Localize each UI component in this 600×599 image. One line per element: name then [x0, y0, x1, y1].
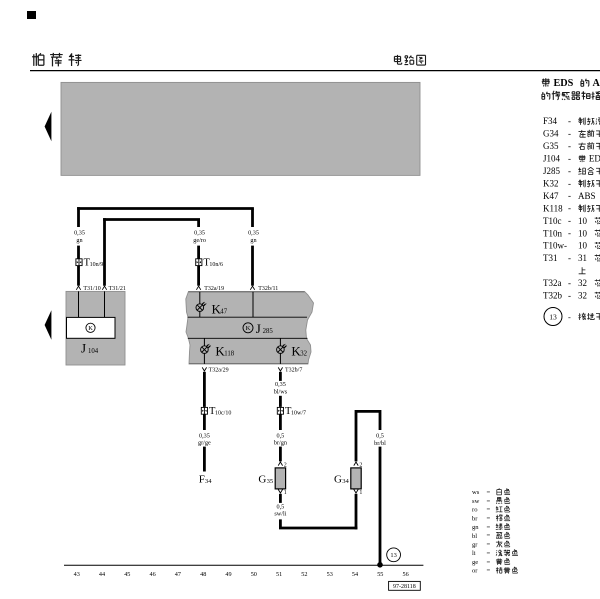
svg-text:bl/ws: bl/ws	[274, 388, 288, 395]
svg-text:T10w-: T10w-	[543, 241, 567, 251]
svg-text:=: =	[487, 498, 491, 505]
svg-text:0,35: 0,35	[74, 230, 85, 237]
svg-text:G34: G34	[543, 129, 559, 139]
svg-text:32: 32	[578, 278, 587, 288]
svg-text:sw/li: sw/li	[274, 511, 286, 518]
svg-text:35: 35	[267, 478, 274, 485]
svg-text:43: 43	[74, 571, 80, 578]
svg-text:10n/9: 10n/9	[90, 262, 104, 268]
svg-text:=: =	[487, 515, 491, 522]
svg-text:T10c: T10c	[543, 216, 562, 226]
svg-text:EDS: EDS	[554, 78, 574, 89]
svg-text:K: K	[246, 325, 251, 332]
svg-text:ge: ge	[472, 559, 478, 566]
svg-text:ro: ro	[472, 507, 478, 514]
svg-text:-: -	[568, 178, 571, 188]
svg-text:-: -	[568, 153, 571, 163]
svg-text:13: 13	[390, 552, 396, 559]
svg-text:285: 285	[263, 328, 274, 335]
svg-text:br/gn: br/gn	[274, 440, 287, 447]
svg-text:gn: gn	[250, 237, 256, 244]
svg-text:34: 34	[205, 478, 212, 485]
svg-text:-: -	[568, 191, 571, 201]
svg-text:=: =	[487, 507, 491, 514]
svg-text:gr: gr	[472, 542, 478, 549]
svg-text:44: 44	[99, 571, 105, 578]
svg-text:47: 47	[175, 571, 181, 578]
svg-text:T31: T31	[543, 253, 558, 263]
svg-text:J285: J285	[543, 166, 561, 176]
svg-text:10: 10	[578, 216, 588, 226]
svg-text:T10n: T10n	[543, 228, 562, 238]
svg-text:gn: gn	[76, 237, 82, 244]
svg-text:ED: ED	[587, 154, 600, 164]
svg-text:ABS: ABS	[578, 191, 596, 201]
svg-text:=: =	[487, 568, 491, 575]
svg-text:T32a/29: T32a/29	[209, 368, 229, 374]
svg-text:sw: sw	[472, 498, 480, 505]
svg-text:=: =	[487, 489, 491, 496]
svg-text:10: 10	[578, 241, 588, 251]
svg-text:50: 50	[251, 571, 257, 578]
svg-text:G35: G35	[543, 141, 559, 151]
svg-text:32: 32	[300, 351, 307, 358]
svg-text:J: J	[256, 321, 261, 336]
svg-text:1: 1	[359, 490, 362, 496]
svg-text:51: 51	[276, 571, 282, 578]
svg-text:bl: bl	[472, 533, 477, 540]
svg-text:T32b/7: T32b/7	[285, 368, 302, 374]
svg-text:10: 10	[578, 228, 588, 238]
svg-text:gn: gn	[472, 524, 479, 531]
svg-text:54: 54	[352, 571, 358, 578]
svg-text:10n/6: 10n/6	[209, 262, 223, 268]
svg-text:K32: K32	[543, 178, 559, 188]
svg-text:0,35: 0,35	[199, 433, 210, 440]
svg-text:or: or	[472, 568, 478, 575]
svg-text:10w/7: 10w/7	[291, 410, 306, 416]
svg-text:-: -	[568, 203, 571, 213]
svg-text:gr/ge: gr/ge	[198, 440, 211, 447]
svg-text:K: K	[88, 325, 93, 332]
svg-text:=: =	[487, 550, 491, 557]
svg-text:-: -	[568, 166, 571, 176]
svg-text:31: 31	[578, 253, 587, 263]
svg-text:0,35: 0,35	[248, 230, 259, 237]
svg-text:53: 53	[327, 571, 333, 578]
svg-text:K118: K118	[543, 203, 563, 213]
svg-text:F34: F34	[543, 116, 558, 126]
svg-text:55: 55	[377, 571, 383, 578]
svg-text:K47: K47	[543, 191, 559, 201]
svg-text:ge/ro: ge/ro	[193, 237, 206, 244]
svg-text:T32a: T32a	[543, 278, 562, 288]
svg-text:T32b: T32b	[543, 291, 562, 301]
svg-text:li: li	[472, 550, 476, 557]
svg-text:104: 104	[88, 348, 99, 355]
svg-text:AB: AB	[593, 78, 600, 89]
svg-text:52: 52	[301, 571, 307, 578]
svg-text:-: -	[568, 253, 571, 263]
svg-text:46: 46	[150, 571, 156, 578]
svg-text:G: G	[258, 474, 266, 486]
svg-text:0,5: 0,5	[277, 433, 285, 440]
svg-text:J104: J104	[543, 154, 561, 164]
svg-text:J: J	[81, 340, 86, 355]
svg-text:45: 45	[124, 571, 130, 578]
svg-text:=: =	[487, 533, 491, 540]
svg-text:13: 13	[549, 312, 557, 321]
svg-text:=: =	[487, 524, 491, 531]
svg-text:=: =	[487, 559, 491, 566]
svg-text:48: 48	[200, 571, 206, 578]
svg-text:118: 118	[224, 351, 235, 358]
svg-text:97-28118: 97-28118	[393, 584, 416, 590]
svg-text:br: br	[472, 515, 478, 522]
svg-text:0,5: 0,5	[277, 504, 285, 511]
svg-text:-: -	[568, 216, 571, 226]
svg-text:=: =	[487, 541, 491, 548]
svg-text:34: 34	[342, 478, 349, 485]
svg-text:-: -	[568, 228, 571, 238]
svg-text:56: 56	[403, 571, 409, 578]
svg-text:1: 1	[284, 490, 287, 496]
svg-text:br/bl: br/bl	[374, 440, 386, 447]
svg-text:-: -	[568, 313, 571, 322]
svg-text:-: -	[568, 116, 571, 126]
svg-text:-: -	[568, 141, 571, 151]
svg-text:49: 49	[225, 571, 231, 578]
svg-text:47: 47	[220, 309, 227, 316]
svg-text:-: -	[568, 128, 571, 138]
svg-text:0,35: 0,35	[275, 381, 286, 388]
svg-text:ws: ws	[472, 489, 480, 496]
svg-text:G: G	[334, 474, 342, 486]
svg-text:32: 32	[578, 291, 587, 301]
svg-text:-: -	[568, 278, 571, 288]
svg-text:10c/10: 10c/10	[215, 410, 231, 416]
svg-text:-: -	[568, 290, 571, 300]
svg-text:0,35: 0,35	[194, 230, 205, 237]
svg-text:0,5: 0,5	[376, 433, 384, 440]
